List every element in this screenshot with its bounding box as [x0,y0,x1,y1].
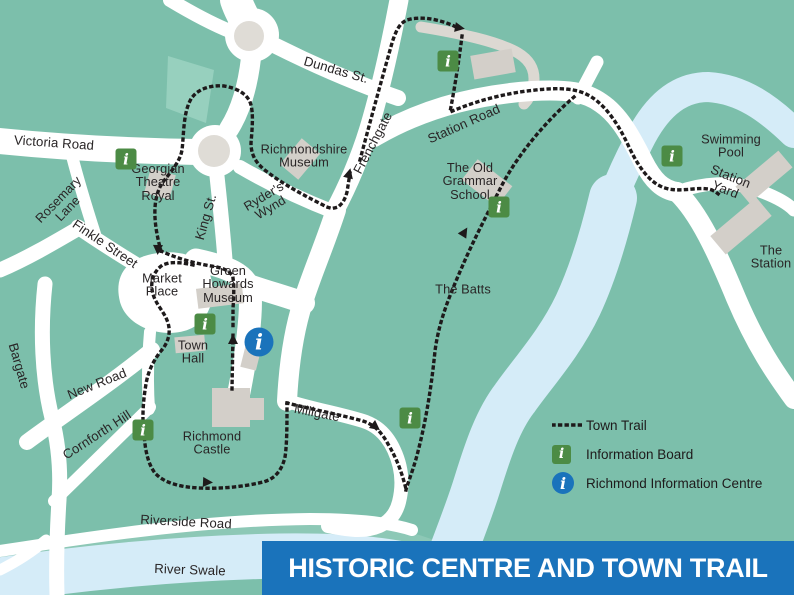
information-board-icon: i [133,420,154,441]
title-banner: HISTORIC CENTRE AND TOWN TRAIL [262,541,794,595]
richmond-town-map: Victoria Road Rosemary Lane Finkle Stree… [0,0,794,595]
information-board-icon: i [552,445,571,464]
legend-information-board: i Information Board [552,443,762,465]
legend-label: Information Board [586,447,693,462]
legend-information-centre: i Richmond Information Centre [552,472,762,494]
legend: Town Trail i Information Board i Richmon… [552,414,762,501]
place-label-richmond-castle: Richmond Castle [183,430,241,457]
place-label-old-grammar-school: The Old Grammar School [443,161,498,201]
information-board-icon: i [116,149,137,170]
place-label-richmondshire-museum: Richmondshire Museum [261,143,348,170]
park-patch [166,56,214,123]
water-label-river-swale: River Swale [154,562,226,578]
trail-dashes-icon [552,422,586,428]
place-label-town-hall: Town Hall [178,339,208,366]
place-label-the-batts: The Batts [435,282,491,295]
map-title: HISTORIC CENTRE AND TOWN TRAIL [288,553,768,584]
place-label-swimming-pool: Swimming Pool [701,133,761,160]
information-board-icon: i [489,197,510,218]
place-label-green-howards-museum: Green Howards Museum [202,264,253,304]
legend-label: Richmond Information Centre [586,476,762,491]
information-board-icon: i [662,146,683,167]
place-label-the-station: The Station [751,244,792,271]
information-centre-icon: i [245,328,274,357]
place-label-georgian-theatre-royal: Georgian Theatre Royal [131,162,184,202]
legend-town-trail: Town Trail [552,414,762,436]
information-centre-icon: i [552,472,574,494]
information-board-icon: i [438,51,459,72]
information-board-icon: i [195,314,216,335]
map-canvas [0,0,794,595]
place-label-market-place: Market Place [142,272,182,299]
information-board-icon: i [400,408,421,429]
legend-label: Town Trail [586,418,647,433]
